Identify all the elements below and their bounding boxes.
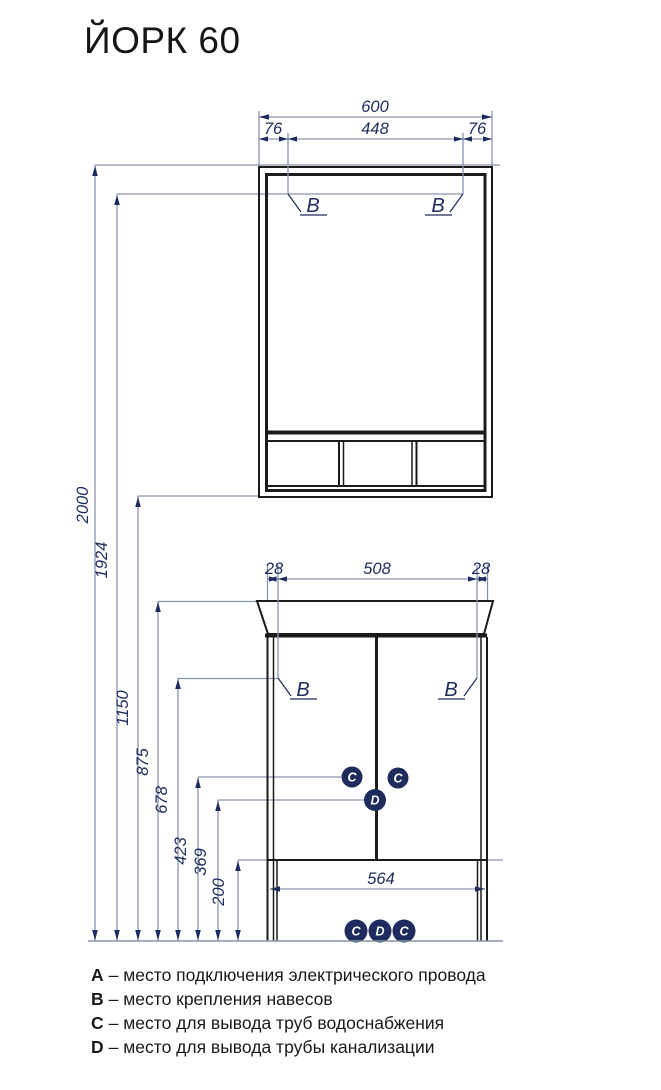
drain-outlet-marker-d: D — [375, 925, 384, 939]
hanger-marker-b: B — [306, 195, 319, 217]
water-outlet-marker-c: C — [347, 771, 357, 785]
mirror-cabinet-drawing — [259, 167, 492, 497]
height-dimension-lines: 2000 1924 1150 875 678 423 369 200 — [74, 165, 503, 941]
dim-height-1924: 1924 — [93, 542, 111, 579]
legend-row-d: D– место для вывода трубы канализации — [91, 1035, 486, 1059]
dim-vanity-hanger-span: 508 — [363, 560, 391, 578]
vanity-drawing — [257, 601, 493, 941]
dim-base-width: 564 — [367, 870, 395, 888]
dim-height-875: 875 — [134, 747, 152, 775]
water-outlet-marker-c: C — [399, 925, 409, 939]
dim-mirror-total-width: 600 — [361, 98, 389, 116]
hanger-marker-b: B — [296, 679, 309, 701]
dim-vanity-right-offset: 28 — [471, 560, 491, 578]
water-outlet-marker-c: C — [393, 772, 403, 786]
legend-row-a: A– место подключения электрического пров… — [91, 963, 486, 987]
dim-mirror-hanger-span: 448 — [361, 120, 389, 138]
legend: A– место подключения электрического пров… — [91, 963, 486, 1059]
mirror-cabinet-width-dimensions: 600 76 448 76 — [259, 98, 492, 194]
water-outlet-marker-c: C — [351, 925, 361, 939]
drain-outlet-marker-d: D — [370, 794, 379, 808]
mirror-hanger-markers: B B — [288, 194, 463, 217]
dim-height-678: 678 — [153, 785, 171, 813]
dim-vanity-left-offset: 28 — [264, 560, 284, 578]
dim-height-200: 200 — [210, 877, 228, 906]
dim-height-423: 423 — [172, 836, 190, 864]
dim-height-1150: 1150 — [114, 689, 132, 725]
legend-row-b: B– место крепления навесов — [91, 987, 486, 1011]
base-width-dimension: 564 — [270, 870, 485, 892]
furniture-scheme-drawing: 2000 1924 1150 875 678 423 369 200 — [0, 0, 661, 1090]
dim-mirror-left-offset: 76 — [264, 120, 283, 138]
hanger-marker-b: B — [444, 679, 457, 701]
hanger-marker-b: B — [431, 195, 444, 217]
pipe-markers-bottom: C D C — [345, 920, 416, 943]
dim-mirror-right-offset: 76 — [468, 120, 487, 138]
technical-drawing-page: ЙОРК 60 — [0, 0, 661, 1090]
dim-height-369: 369 — [192, 848, 210, 876]
dim-height-2000: 2000 — [74, 486, 92, 525]
legend-row-c: C– место для вывода труб водоснабжения — [91, 1011, 486, 1035]
